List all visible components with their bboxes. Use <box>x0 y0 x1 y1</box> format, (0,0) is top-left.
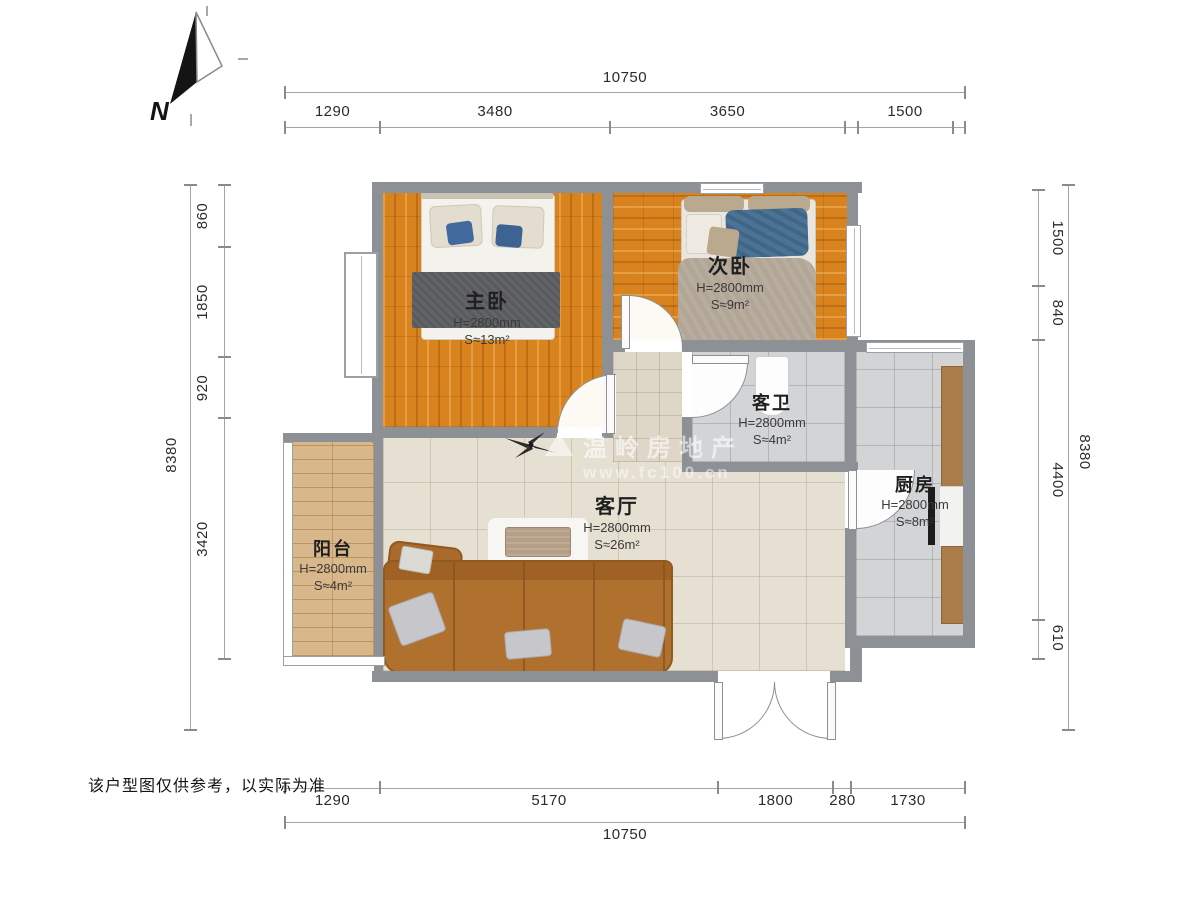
entry-door-right-leaf <box>827 682 836 740</box>
dim-top-seg-3: 1500 <box>845 104 965 120</box>
room-label-second: 次卧 H=2800mm S≈9m² <box>670 255 790 313</box>
room-label-bath: 客卫 H=2800mm S≈4m² <box>712 392 832 448</box>
room-area-second: S≈9m² <box>670 296 790 313</box>
dim-bottom-seg-4: 1730 <box>851 793 965 809</box>
sofa-cushion-2 <box>504 628 552 660</box>
kitchen-window <box>866 342 964 353</box>
balcony-bottom-railing <box>283 656 385 666</box>
room-name-master: 主卧 <box>427 290 547 314</box>
dim-left-seg-3: 3420 <box>195 504 211 574</box>
room-area-balcony: S≈4m² <box>273 577 393 594</box>
dim-tick <box>1032 658 1045 660</box>
dim-line <box>285 788 965 789</box>
dim-tick <box>184 729 197 731</box>
room-area-bath: S≈4m² <box>712 431 832 448</box>
bay-window-mullion <box>361 256 362 374</box>
dim-line <box>224 185 225 660</box>
dim-tick <box>1062 729 1075 731</box>
room-area-master: S≈13m² <box>427 331 547 348</box>
dim-tick <box>964 86 966 99</box>
dim-bottom-seg-2: 1800 <box>718 793 833 809</box>
window-mullion <box>854 228 855 334</box>
wall-living-bottom-left <box>372 671 718 682</box>
dim-left-seg-0: 860 <box>195 181 211 251</box>
room-label-master: 主卧 H=2800mm S≈13m² <box>427 290 547 348</box>
master-door-leaf <box>606 374 615 434</box>
dim-right-seg-3: 610 <box>1049 603 1065 673</box>
room-height-master: H=2800mm <box>427 314 547 331</box>
dim-line <box>285 127 965 128</box>
wall-living-bottom-right <box>830 671 862 682</box>
dim-line <box>190 185 191 730</box>
room-label-balcony: 阳台 H=2800mm S≈4m² <box>273 538 393 594</box>
kitchen-counter-lower <box>941 546 965 624</box>
floor-plan-page: N <box>0 0 1200 900</box>
dim-tick <box>844 121 846 134</box>
dim-top-seg-1: 3480 <box>380 104 610 120</box>
master-blue-pillow-right <box>495 224 523 248</box>
dim-tick <box>952 121 954 134</box>
dim-right-seg-2: 4400 <box>1049 445 1065 515</box>
kitchen-counter-upper <box>941 366 965 488</box>
dim-tick <box>1032 619 1045 621</box>
dim-left-seg-1: 1850 <box>195 267 211 337</box>
dim-line <box>285 92 965 93</box>
dim-tick <box>1032 285 1045 287</box>
entry-door-right-swing <box>774 682 831 739</box>
compass-tick-right <box>238 58 248 60</box>
compass-tick-top <box>206 6 208 16</box>
dim-tick <box>284 86 286 99</box>
dim-bottom-total: 10750 <box>285 827 965 843</box>
wall-under-second-right <box>682 340 858 352</box>
wall-kitchen-left-upper <box>845 352 856 470</box>
dim-line <box>285 822 965 823</box>
room-height-balcony: H=2800mm <box>273 560 393 577</box>
room-area-kitchen: S≈8m² <box>855 513 975 530</box>
entry-door-left-leaf <box>714 682 723 740</box>
dim-bottom-seg-1: 5170 <box>380 793 718 809</box>
master-blue-pillow-left <box>446 220 475 245</box>
room-height-living: H=2800mm <box>557 519 677 536</box>
wall-kitchen-bottom <box>856 636 975 648</box>
dim-left-seg-2: 920 <box>195 353 211 423</box>
compass: N <box>150 8 245 133</box>
second-bedroom-top-window <box>700 183 764 194</box>
dim-tick <box>1032 339 1045 341</box>
dim-tick <box>218 356 231 358</box>
watermark-logo <box>545 432 573 456</box>
entry-door-left-swing <box>718 682 775 739</box>
wall-top-bedrooms <box>372 182 862 193</box>
room-name-kitchen: 厨房 <box>855 474 975 496</box>
dim-tick <box>218 246 231 248</box>
disclaimer-text: 该户型图仅供参考，以实际为准 <box>88 772 326 796</box>
dim-top-seg-2: 3650 <box>610 104 845 120</box>
dim-tick <box>218 417 231 419</box>
dim-tick <box>218 184 231 186</box>
room-name-balcony: 阳台 <box>273 538 393 560</box>
dim-line <box>1038 190 1039 660</box>
window-mullion <box>703 189 761 190</box>
second-bedroom-side-window <box>846 225 861 337</box>
dim-tick <box>379 121 381 134</box>
bathroom-door-leaf <box>692 355 749 364</box>
room-label-kitchen: 厨房 H=2800mm S≈8m² <box>855 474 975 530</box>
wall-kitchen-left-lower <box>845 528 856 648</box>
master-bed-headboard <box>421 193 553 199</box>
window-mullion <box>869 348 961 349</box>
room-label-living: 客厅 H=2800mm S≈26m² <box>557 495 677 553</box>
second-tan-pillow <box>706 226 740 258</box>
wall-step-connector <box>850 648 862 671</box>
room-height-bath: H=2800mm <box>712 414 832 431</box>
room-name-second: 次卧 <box>670 255 790 279</box>
watermark-url: www.fc100.cn <box>583 463 823 483</box>
dim-right-seg-1: 840 <box>1049 278 1065 348</box>
dim-line <box>1068 185 1069 730</box>
wall-balcony-top <box>283 433 374 442</box>
dim-right-total: 8380 <box>1076 417 1092 487</box>
room-name-bath: 客卫 <box>712 392 832 414</box>
dim-tick <box>1032 189 1045 191</box>
compass-tick-bottom <box>190 114 192 126</box>
dim-tick <box>1062 184 1075 186</box>
dim-tick <box>284 121 286 134</box>
dim-tick <box>964 121 966 134</box>
dim-top-total: 10750 <box>285 70 965 86</box>
room-area-living: S≈26m² <box>557 536 677 553</box>
dim-top-seg-0: 1290 <box>285 104 380 120</box>
dim-tick <box>609 121 611 134</box>
room-name-living: 客厅 <box>557 495 677 519</box>
dim-left-total: 8380 <box>164 420 180 490</box>
master-bay-window <box>344 252 378 378</box>
second-door-leaf <box>621 295 630 349</box>
dim-right-seg-0: 1500 <box>1049 203 1065 273</box>
dim-tick <box>218 658 231 660</box>
dim-tick <box>857 121 859 134</box>
room-height-second: H=2800mm <box>670 279 790 296</box>
compass-north-label: N <box>150 96 169 127</box>
room-height-kitchen: H=2800mm <box>855 496 975 513</box>
